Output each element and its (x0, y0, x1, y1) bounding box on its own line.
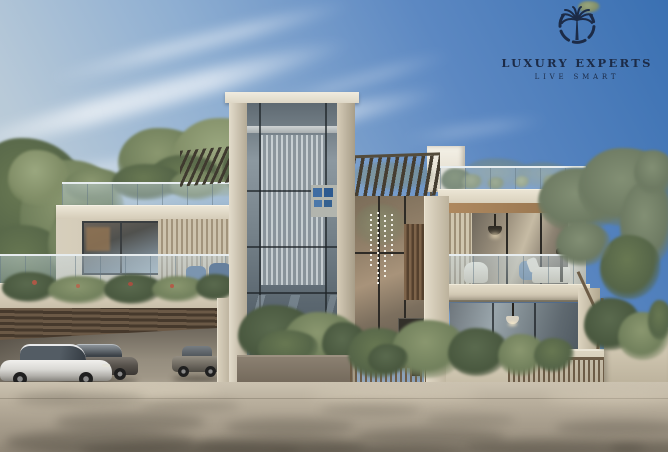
tree-foliage (634, 150, 668, 194)
blue-artwork (313, 188, 322, 197)
entrance-shrub (534, 338, 574, 372)
blue-artwork (324, 200, 332, 207)
planter-flower (76, 284, 80, 288)
corner-bush (648, 300, 668, 340)
grey-sedan (172, 342, 222, 382)
dappled-shadow (425, 414, 515, 426)
pendant-glow (508, 322, 517, 326)
pendant-cord (512, 303, 514, 317)
blue-artwork (314, 200, 322, 207)
villa-exterior-render: 66 (0, 0, 668, 452)
brand-logo: LUXURY EXPERTS LIVE SMART (498, 4, 656, 81)
car-headlight (102, 364, 110, 367)
entrance-pergola (344, 152, 440, 198)
palm-in-crescent-icon (550, 4, 604, 48)
brand-name: LUXURY EXPERTS (498, 56, 656, 70)
pendant-glow (490, 233, 500, 238)
dappled-shadow (320, 404, 420, 416)
left-wing-fascia (56, 205, 234, 220)
cascade-chandelier (377, 212, 379, 284)
cascade-chandelier (384, 215, 386, 277)
dappled-shadow (140, 400, 240, 412)
pendant-cord (494, 214, 496, 226)
window-interior-glow (86, 227, 110, 251)
dappled-shadow (55, 412, 205, 432)
dappled-shadow (225, 418, 355, 436)
dappled-shadow (0, 444, 668, 452)
dappled-shadow (15, 392, 145, 406)
wood-slat-panel (404, 224, 424, 300)
entrance-shrub (368, 344, 408, 374)
atrium-tree-reflection (354, 204, 406, 246)
tower-roof-slab (225, 92, 359, 103)
tree-foliage (556, 222, 610, 266)
planter-flower (128, 282, 133, 286)
tower-mullion (247, 292, 337, 294)
tree-foliage (8, 150, 68, 205)
sunlight-patch (310, 390, 480, 400)
brand-tagline: LIVE SMART (498, 73, 656, 81)
planter-plants (48, 276, 112, 304)
planter-flower (32, 280, 37, 285)
blue-artwork (324, 188, 333, 197)
cascade-chandelier (370, 214, 372, 266)
planter-flower (170, 284, 174, 288)
cascade-chandelier (391, 214, 393, 258)
tower-mullion (247, 246, 337, 248)
